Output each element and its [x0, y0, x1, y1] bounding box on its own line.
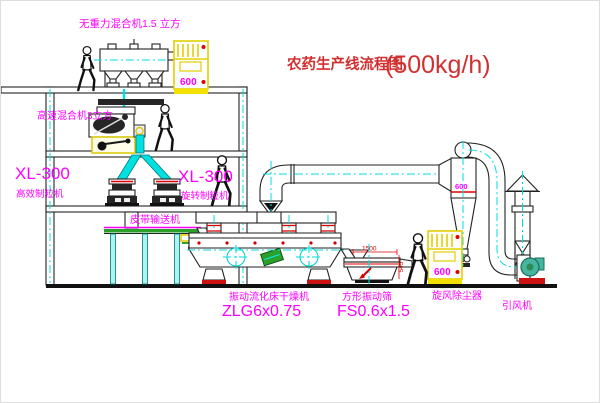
fan-base [519, 278, 545, 284]
label-granulator-left-model: XL-300 [15, 164, 70, 183]
worker-figure-roof [78, 47, 94, 91]
label-gravity-free-mixer: 无重力混合机1.5 立方 [79, 17, 181, 30]
vibrating-sieve: 1500 545 [344, 244, 412, 285]
ground-line [46, 284, 557, 288]
diagram-title-capacity: (500kg/h) [385, 51, 491, 79]
label-high-speed-mixer: 高速混合机3立方 [37, 109, 113, 122]
indicator-lamp-icon [202, 80, 206, 84]
granulator-left [105, 179, 139, 206]
fluid-bed-dryer [187, 212, 358, 284]
dryer-foot-right [307, 269, 331, 284]
dryer-ports [207, 223, 335, 233]
label-dryer-name: 振动流化床干燥机 [229, 290, 309, 303]
label-fan: 引风机 [502, 299, 532, 312]
indicator-lamp-icon [456, 235, 460, 239]
induced-draft-fan [519, 258, 545, 284]
label-granulator-left-name: 高效制粒机 [16, 188, 64, 200]
discharge-manifold [98, 99, 164, 105]
worker-figure-floor2 [156, 105, 173, 150]
label-dryer-model: ZLG6x0.75 [222, 303, 301, 320]
cad-flow-diagram: 600 [0, 0, 600, 403]
exhaust-duct [260, 161, 448, 214]
indicator-lamp-icon [456, 270, 460, 274]
sieve-height-dim: 545 [398, 261, 405, 272]
control-cabinet-2: 600 [428, 231, 462, 284]
label-granulator-right-model: XL-300 [178, 167, 233, 186]
label-sieve-name: 方形振动筛 [342, 290, 392, 303]
diagram-svg: 600 [1, 1, 600, 403]
worker-figure-ground [408, 234, 427, 284]
motor-icon [98, 142, 107, 151]
mixer2-discharge-chute [136, 135, 144, 153]
belt [104, 229, 201, 233]
label-sieve-model: FS0.6x1.5 [337, 303, 410, 320]
cabinet2-readout: 600 [434, 267, 451, 278]
cabinet1-readout: 600 [180, 77, 197, 88]
indicator-lamp-icon [202, 45, 206, 49]
floor3-slab [46, 206, 247, 212]
gravity-free-mixer [94, 39, 187, 114]
control-cabinet-1: 600 [174, 41, 208, 94]
dryer-foot-left [202, 269, 226, 284]
dryer-hood [196, 212, 336, 223]
label-belt-conveyor: 皮带输送机 [130, 213, 180, 226]
label-cyclone: 旋风除尘器 [432, 289, 482, 302]
cyclone-inlet [439, 158, 452, 192]
label-granulator-right-name: 旋转制粒机 [181, 190, 229, 202]
cyclone-diameter-dim: 600 [455, 182, 468, 191]
fan-hub [527, 264, 534, 271]
y-splitter-chute [116, 155, 173, 181]
